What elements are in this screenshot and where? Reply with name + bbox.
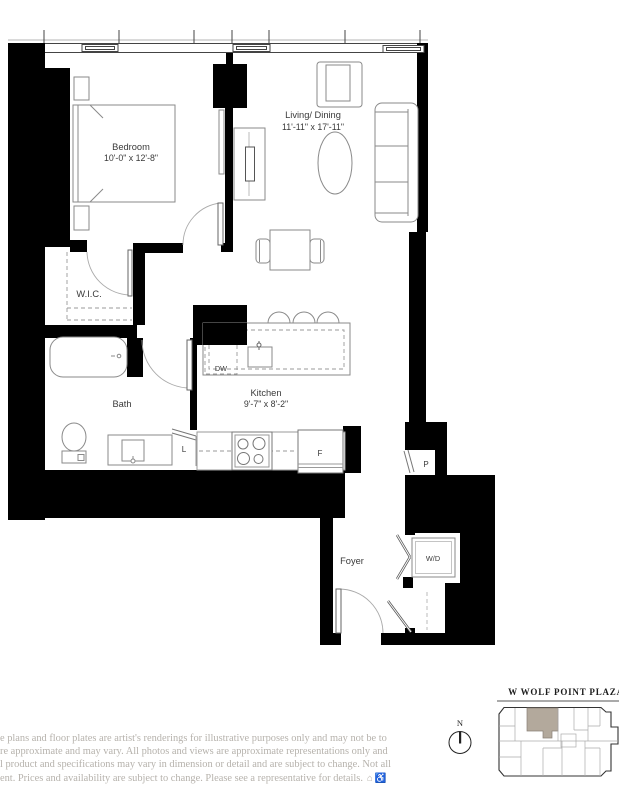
floor-plan-page: Bedroom 10'-0" x 12'-8" Living/ Dining 1…: [0, 0, 619, 800]
kitchen-dims: 9'-7" x 8'-2": [244, 399, 288, 409]
dining-table: [270, 230, 310, 270]
toilet: [62, 423, 86, 451]
pantry-label: P: [423, 460, 428, 469]
dining-chair: [256, 239, 270, 263]
bedroom-door: [183, 203, 223, 245]
entry-door: [336, 589, 383, 633]
equal-housing-icon: ⌂: [367, 774, 375, 784]
wic-label: W.I.C.: [76, 289, 101, 299]
tv: [246, 147, 255, 181]
disclaimer-line: l product and specifications may vary in…: [0, 758, 447, 771]
foyer-label: Foyer: [340, 556, 364, 566]
wic-door: [128, 250, 132, 296]
disclaimer: e plans and floor plates are artist's re…: [0, 732, 447, 786]
tub-faucet: [117, 354, 121, 358]
dining-chair: [310, 239, 324, 263]
accessibility-icon: ♿: [375, 774, 389, 784]
window-wall: [8, 30, 428, 53]
bedroom-dims: 10'-0" x 12'-8": [104, 153, 158, 163]
bedroom-label: Bedroom: [112, 142, 150, 152]
mullion-ticks: [44, 30, 420, 43]
operable-windows: [82, 45, 424, 53]
armchair-cushion: [326, 65, 350, 101]
compass: N: [449, 718, 471, 754]
coffee-table: [318, 132, 352, 194]
disclaimer-line: e plans and floor plates are artist's re…: [0, 732, 447, 745]
wic-closet: [67, 250, 132, 322]
stove: [232, 432, 272, 470]
living-dining-label: Living/ Dining: [285, 110, 341, 120]
bar-stools: [268, 312, 339, 323]
wd-bifold-doors: [397, 535, 410, 579]
nightstand: [74, 77, 89, 100]
living-furniture: [234, 62, 418, 270]
bath-door: [142, 340, 192, 390]
disclaimer-line: re approximate and may vary. All photos …: [0, 745, 447, 758]
compass-north-label: N: [457, 718, 463, 728]
linen-label: L: [182, 445, 187, 454]
street-label: W WOLF POINT PLAZA: [508, 687, 619, 697]
floor-plan-svg: Bedroom 10'-0" x 12'-8" Living/ Dining 1…: [0, 0, 619, 800]
compass-needle: [459, 732, 461, 744]
fridge-label: F: [318, 449, 323, 458]
island-sink: [248, 347, 272, 367]
washer-dryer-label: W/D: [426, 554, 440, 563]
nightstand: [74, 206, 89, 230]
coat-closet-door: [388, 601, 411, 632]
kitchen-label: Kitchen: [250, 388, 281, 398]
mirror: [219, 110, 224, 174]
keyplan: W WOLF POINT PLAZA N: [449, 687, 619, 776]
sofa: [375, 103, 418, 222]
dishwasher-label: DW: [215, 364, 227, 373]
disclaimer-line: ent. Prices and availability are subject…: [0, 772, 447, 786]
bathtub: [50, 337, 127, 377]
linen-door: [172, 429, 196, 436]
bath-label: Bath: [112, 399, 131, 409]
living-dining-dims: 11'-11" x 17'-11": [282, 122, 344, 132]
